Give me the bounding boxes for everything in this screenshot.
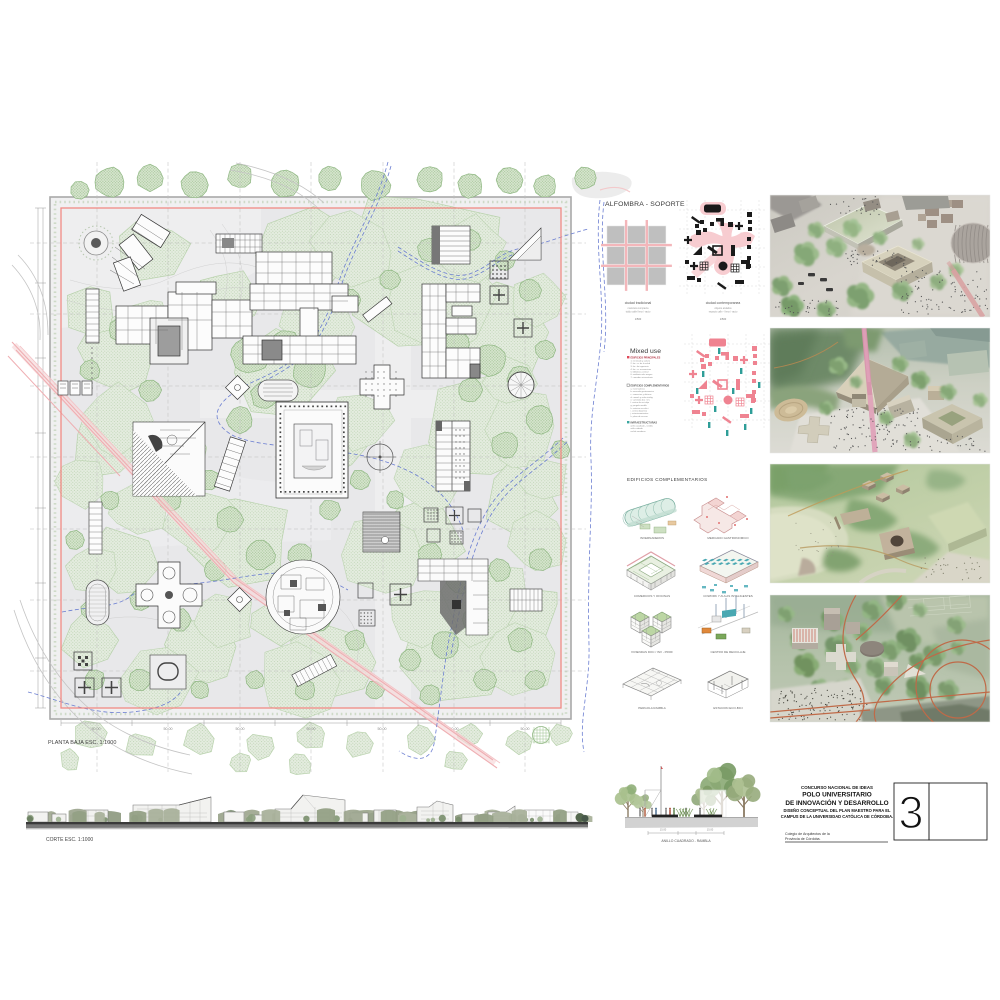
svg-text:a. invernaderos: a. invernaderos <box>631 388 645 391</box>
svg-text:b. mercado gastronomico: b. mercado gastronomico <box>631 390 655 393</box>
svg-text:EDIFICIOS COMPLEMENTARIOS: EDIFICIOS COMPLEMENTARIOS <box>631 384 670 387</box>
svg-text:6. auditorio aula magna: 6. auditorio aula magna <box>631 373 654 376</box>
svg-text:50.00: 50.00 <box>307 727 316 731</box>
svg-text:7. comedor universitario: 7. comedor universitario <box>631 376 654 379</box>
svg-text:DE INNOVACIÓN Y DESARROLLO: DE INNOVACIÓN Y DESARROLLO <box>785 798 888 807</box>
svg-text:15.00: 15.00 <box>660 828 667 832</box>
svg-text:PERGOLA RAMBLA: PERGOLA RAMBLA <box>638 706 666 710</box>
svg-text:PLANTA BAJA ESC. 1:1000: PLANTA BAJA ESC. 1:1000 <box>48 740 116 746</box>
svg-text:1/500: 1/500 <box>635 317 642 321</box>
svg-text:i. centro deportivo: i. centro deportivo <box>631 410 648 413</box>
svg-text:1. rectorado y aulario: 1. rectorado y aulario <box>631 360 651 363</box>
svg-text:50.00: 50.00 <box>92 727 101 731</box>
svg-text:ciudad contemporanea: ciudad contemporanea <box>706 301 741 305</box>
svg-text:f. centro de reciclaje: f. centro de reciclaje <box>631 401 650 404</box>
svg-text:ciudad tradicional: ciudad tradicional <box>625 301 652 305</box>
svg-text:ESTACION ECO-BICI: ESTACION ECO-BICI <box>713 706 742 710</box>
svg-text:ANILLO CUADRADO - RAMBLA: ANILLO CUADRADO - RAMBLA <box>661 839 711 843</box>
svg-text:MERCADO GASTRONOMICO: MERCADO GASTRONOMICO <box>707 536 749 540</box>
svg-text:3: 3 <box>898 787 923 838</box>
svg-text:EDIFICIOS COMPLEMENTARIOS: EDIFICIOS COMPLEMENTARIOS <box>627 477 708 482</box>
svg-text:15.00: 15.00 <box>707 828 714 832</box>
svg-text:g. pergola rambla: g. pergola rambla <box>631 404 648 407</box>
svg-text:EDIFICIOS PRINCIPALES: EDIFICIOS PRINCIPALES <box>631 356 661 359</box>
svg-text:Colegio de Arquitectos de la: Colegio de Arquitectos de la <box>785 832 830 836</box>
svg-text:h. estacion eco-bici: h. estacion eco-bici <box>631 407 649 410</box>
svg-text:CONCURSO NACIONAL DE IDEAS: CONCURSO NACIONAL DE IDEAS <box>801 785 873 790</box>
svg-text:c. comercios y oficinas: c. comercios y oficinas <box>631 393 652 396</box>
svg-text:INFRAESTRUCTURAS: INFRAESTRUCTURAS <box>631 421 658 424</box>
svg-text:d. cowork y aulas intelig.: d. cowork y aulas intelig. <box>631 396 654 399</box>
svg-text:COMERCIOS Y OFICINAS: COMERCIOS Y OFICINAS <box>634 594 670 598</box>
svg-text:1/500: 1/500 <box>720 317 727 321</box>
svg-text:INVERNADEROS: INVERNADEROS <box>640 536 664 540</box>
svg-text:VIVIENDAS DOC / INV - PROF: VIVIENDAS DOC / INV - PROF <box>631 650 673 654</box>
svg-text:DISEÑO CONCEPTUAL DEL PLAN MAE: DISEÑO CONCEPTUAL DEL PLAN MAESTRO PARA … <box>784 808 891 813</box>
svg-text:valle cuidado: valle cuidado <box>631 428 644 430</box>
svg-text:50.00: 50.00 <box>521 727 530 731</box>
svg-text:50.00: 50.00 <box>236 727 245 731</box>
svg-text:tejido calle lleno / vacio: tejido calle lleno / vacio <box>626 311 651 314</box>
svg-text:COWORK Y AULAS INTELIGENTES: COWORK Y AULAS INTELIGENTES <box>703 594 753 598</box>
svg-text:4. fac. cs. economicas: 4. fac. cs. economicas <box>631 369 652 371</box>
svg-text:Mixed use: Mixed use <box>630 348 661 355</box>
svg-text:CAMPUS DE LA UNIVERSIDAD CATÓL: CAMPUS DE LA UNIVERSIDAD CATÓLICA DE CÓR… <box>781 814 893 819</box>
svg-text:50.00: 50.00 <box>164 727 173 731</box>
svg-text:j. estacionamientos: j. estacionamientos <box>630 412 649 415</box>
svg-text:ALFOMBRA - SOPORTE: ALFOMBRA - SOPORTE <box>605 201 685 208</box>
svg-text:espacio calle - lleno / vacio: espacio calle - lleno / vacio <box>709 311 738 314</box>
svg-text:red de senderos: red de senderos <box>631 430 646 433</box>
svg-text:50.00: 50.00 <box>378 727 387 731</box>
svg-text:e. viviendas doc / inv: e. viviendas doc / inv <box>631 400 651 402</box>
svg-text:anillo cuadrado - rambla: anillo cuadrado - rambla <box>631 425 654 428</box>
svg-text:POLO UNIVERSITARIO: POLO UNIVERSITARIO <box>802 792 872 799</box>
svg-text:CENTRO DE RECICLAJE: CENTRO DE RECICLAJE <box>710 650 745 654</box>
svg-text:CORTE ESC. 1:1000: CORTE ESC. 1:1000 <box>46 837 93 843</box>
svg-text:5. biblioteca central: 5. biblioteca central <box>631 371 649 374</box>
svg-text:k. plaza de acceso: k. plaza de acceso <box>631 416 649 418</box>
svg-text:3. fac. de ingenieria: 3. fac. de ingenieria <box>631 365 650 368</box>
svg-text:Provincia de Córdoba.: Provincia de Córdoba. <box>785 837 821 841</box>
svg-text:2. fac. cs. de la salud: 2. fac. cs. de la salud <box>631 363 651 365</box>
